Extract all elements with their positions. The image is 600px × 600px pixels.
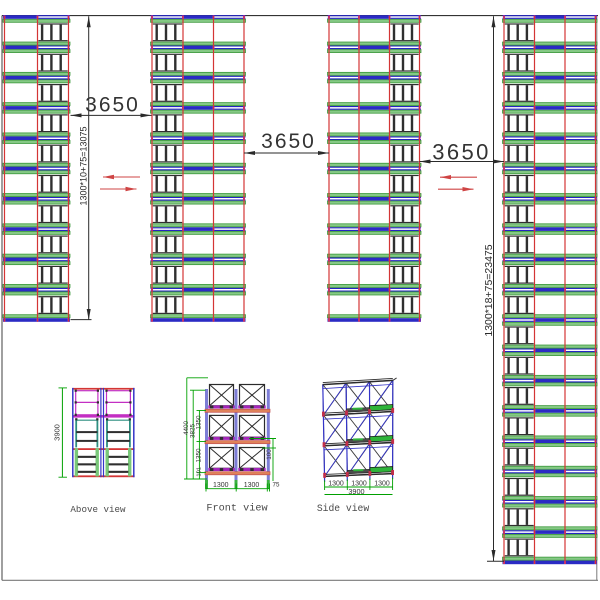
svg-text:101: 101	[197, 467, 203, 477]
svg-text:1300*10+75=13075: 1300*10+75=13075	[79, 126, 89, 205]
svg-text:1350: 1350	[196, 415, 203, 430]
svg-text:100: 100	[266, 449, 273, 460]
svg-text:3650: 3650	[85, 94, 140, 117]
svg-text:Front view: Front view	[206, 503, 268, 515]
svg-text:75: 75	[273, 481, 280, 488]
svg-text:1300: 1300	[374, 481, 390, 488]
svg-text:3900: 3900	[53, 424, 62, 441]
svg-text:1300: 1300	[244, 482, 260, 489]
svg-text:1300*18+75=23475: 1300*18+75=23475	[483, 244, 495, 336]
svg-text:3900: 3900	[348, 487, 364, 496]
svg-text:3650: 3650	[432, 139, 491, 164]
svg-text:1300: 1300	[328, 481, 344, 488]
svg-text:3650: 3650	[261, 130, 316, 153]
svg-text:Side view: Side view	[317, 503, 370, 514]
svg-text:1300: 1300	[213, 482, 229, 489]
svg-text:Above view: Above view	[70, 504, 126, 515]
svg-text:1350: 1350	[196, 448, 203, 463]
